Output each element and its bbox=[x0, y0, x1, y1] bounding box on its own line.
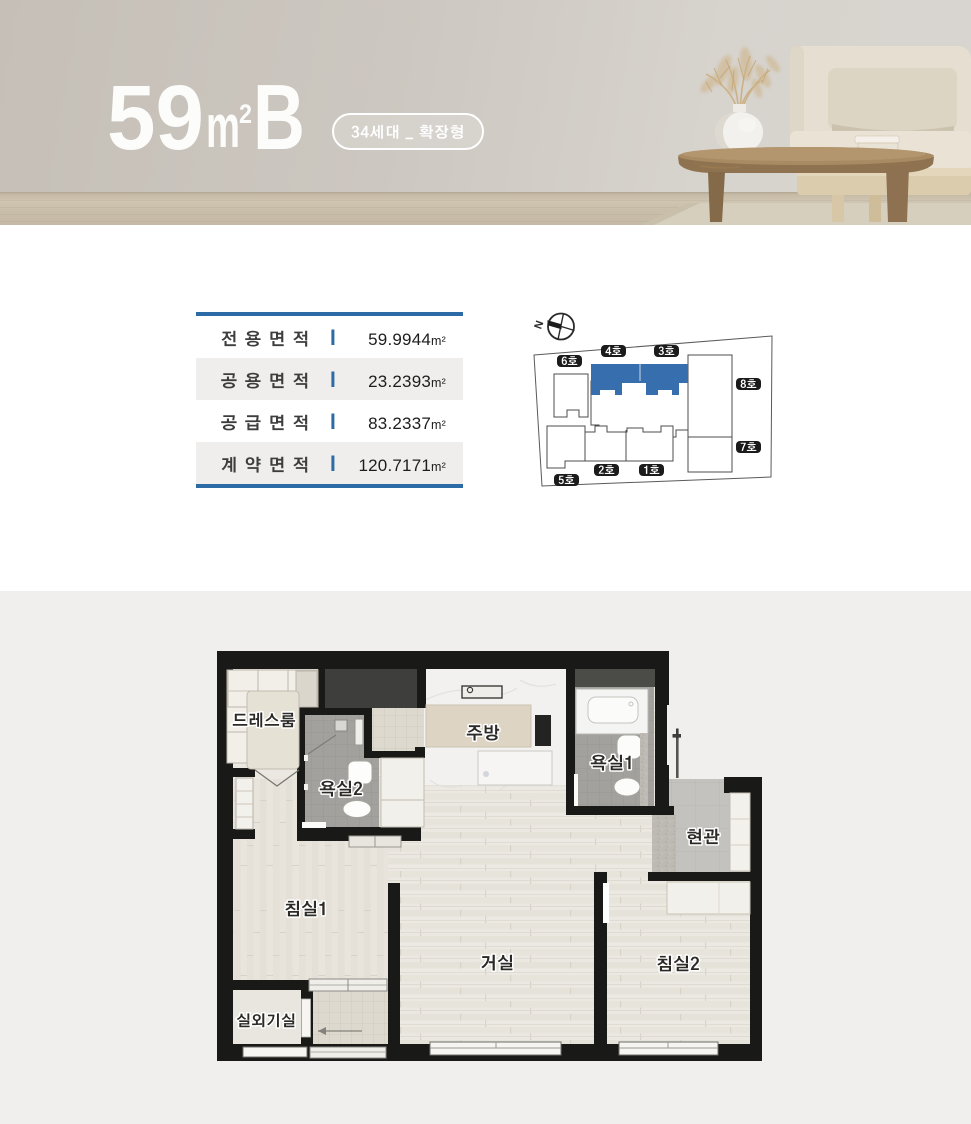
svg-text:m: m bbox=[206, 93, 240, 160]
svg-text:B: B bbox=[253, 65, 305, 169]
svg-text:N: N bbox=[532, 319, 546, 331]
svg-text:2: 2 bbox=[239, 99, 252, 129]
svg-text:59: 59 bbox=[107, 67, 204, 169]
